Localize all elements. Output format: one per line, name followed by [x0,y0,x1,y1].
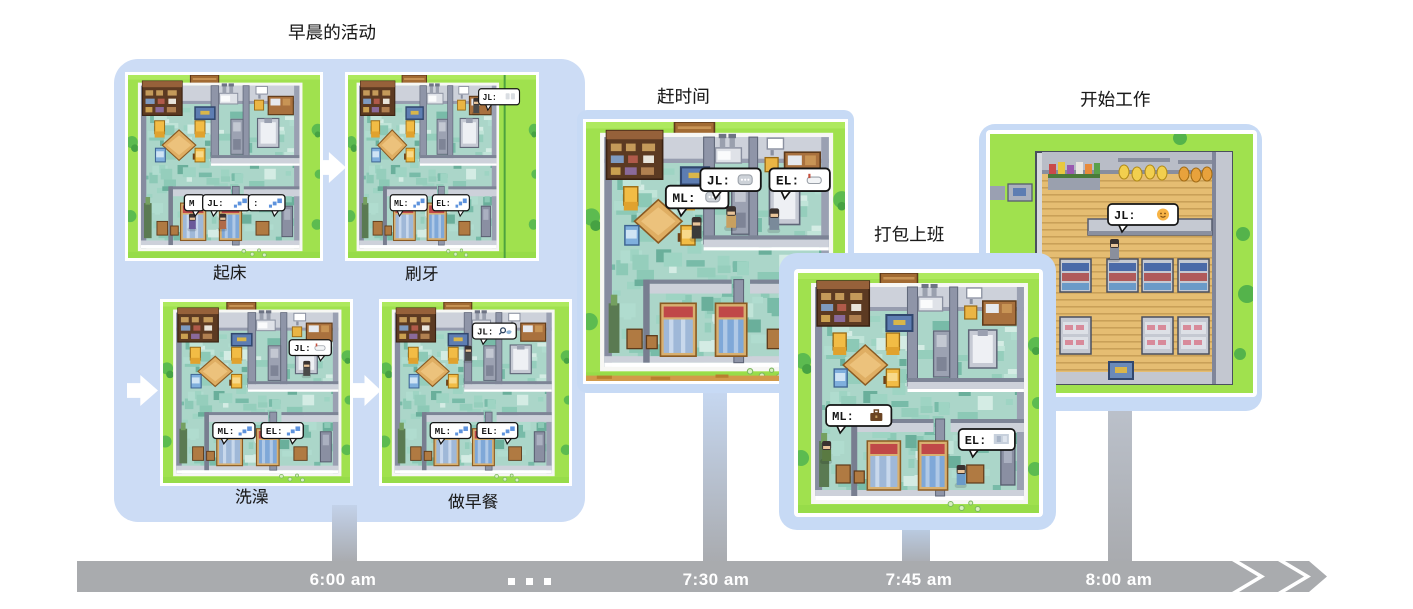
svg-text:ML:: ML: [832,410,854,424]
svg-text:JL:: JL: [1114,209,1136,223]
svg-text:M: M [189,198,195,209]
svg-text:EL:: EL: [965,434,987,448]
svg-text:JL:: JL: [294,343,311,354]
svg-text:ML:: ML: [672,191,695,206]
svg-text:EL:: EL: [482,426,498,437]
svg-text:EL:: EL: [436,199,450,210]
svg-text:JL:: JL: [707,174,730,189]
svg-text:EL:: EL: [266,426,283,437]
svg-text:EL:: EL: [776,174,799,189]
svg-text::: : [253,198,258,209]
svg-text:ML:: ML: [435,426,451,437]
svg-text:ML:: ML: [218,426,235,437]
svg-text:JL:: JL: [477,326,493,337]
svg-text:ML:: ML: [394,199,408,210]
svg-text:JL:: JL: [483,93,497,104]
svg-text:JL:: JL: [207,198,223,209]
